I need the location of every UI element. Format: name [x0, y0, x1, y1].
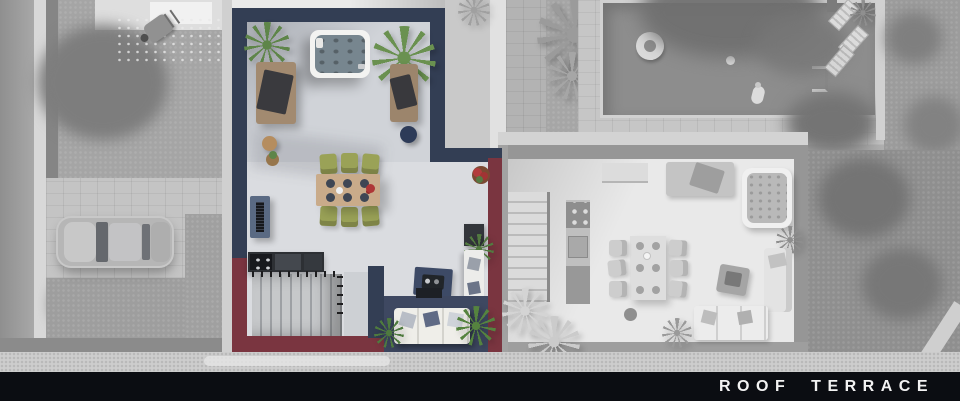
twin-plate — [636, 264, 644, 272]
navy-pouf — [400, 126, 417, 143]
caption-bar: ROOF TERRACE — [0, 372, 960, 401]
round-side-table — [262, 136, 277, 151]
twin-plate — [652, 264, 660, 272]
staircase — [252, 274, 342, 336]
twin-plant-by-sofa — [662, 318, 692, 348]
stove-burners — [250, 254, 272, 270]
car-rear-window — [142, 224, 150, 260]
twin-kitchen — [566, 200, 590, 304]
outdoor-kitchen — [248, 252, 324, 272]
twin-sofa-top-cushion — [689, 162, 725, 194]
daybed-right-cushion — [389, 74, 417, 110]
plant-basket — [266, 153, 279, 166]
twin-sofa-pillow — [701, 309, 718, 325]
twin-chair — [609, 240, 627, 256]
twin-ottoman-tray — [724, 271, 742, 288]
green-leaf — [476, 176, 483, 183]
dining-chair — [361, 153, 380, 174]
kitchen-module — [275, 254, 301, 270]
sidewalk-light-patch — [204, 356, 390, 366]
plate — [360, 193, 369, 202]
car-windshield — [96, 222, 108, 262]
wall-top-navy — [232, 8, 445, 22]
floor-label: ROOF TERRACE — [719, 379, 934, 395]
sidewalk — [0, 352, 960, 372]
twin-sink — [568, 236, 588, 258]
plant-lounge-left — [374, 318, 404, 348]
twin-chair — [607, 259, 627, 277]
hot-tub — [310, 30, 370, 78]
hot-tub-control — [358, 64, 365, 69]
twin-chair — [609, 281, 627, 297]
twin-plate — [636, 242, 644, 250]
stair-railing-side — [337, 274, 343, 314]
twin-sofa-bottom — [694, 306, 768, 340]
daybed-left-cushion — [256, 69, 294, 114]
sideboard-pillow — [467, 257, 481, 271]
dining-chair — [341, 153, 358, 173]
garden-tree-2 — [904, 96, 960, 154]
car-roof — [109, 223, 141, 261]
plate — [343, 179, 352, 188]
fence-line — [222, 0, 232, 352]
pool-side-table — [827, 0, 837, 12]
floor-plan-render: ROOF TERRACE — [0, 0, 960, 401]
twin-chaise — [764, 248, 792, 312]
tv-panel — [416, 288, 442, 298]
wall-stair-bottom-maroon — [236, 336, 386, 352]
twin-chair — [668, 239, 687, 256]
sideboard-pillow-2 — [467, 281, 481, 295]
dining-chair — [319, 206, 337, 227]
twin-hot-tub — [742, 168, 792, 228]
twin-sofa-pillow — [737, 310, 753, 325]
twin-stairs — [508, 192, 550, 302]
twin-sofa-top — [666, 162, 734, 196]
red-table-flowers — [366, 184, 375, 193]
stair-landing — [344, 272, 368, 336]
twin-top-wall — [498, 145, 808, 159]
twin-chair — [670, 260, 688, 276]
daybed-right — [390, 64, 418, 122]
tree-right-of-unit — [818, 158, 910, 238]
twin-cabinet — [566, 266, 590, 304]
street — [0, 0, 34, 372]
hedge-bottom-left — [0, 338, 232, 352]
dining-chair — [341, 207, 358, 227]
plate — [343, 193, 352, 202]
car-trunk — [151, 222, 170, 262]
plate — [326, 179, 335, 188]
twin-plate — [652, 242, 660, 250]
daybed-left — [256, 62, 296, 124]
twin-chair — [668, 280, 688, 298]
console-grille — [256, 202, 264, 232]
wall-right-upper-navy — [430, 8, 445, 160]
tray-cup — [425, 278, 430, 283]
dining-chair — [319, 153, 337, 174]
console-bench — [250, 196, 270, 238]
plant-grey-poolside — [850, 0, 876, 26]
twin-plate — [636, 286, 644, 294]
white-dish — [336, 187, 343, 194]
twin-pouf — [624, 308, 637, 321]
garden-right-path — [876, 0, 885, 140]
stair-railing — [252, 271, 342, 277]
twin-chaise-pillow — [768, 252, 787, 268]
plate — [326, 193, 335, 202]
tray-cup-2 — [434, 279, 439, 284]
car-hood — [64, 222, 96, 262]
garden-tree-1 — [886, 12, 942, 64]
twin-plate — [652, 286, 660, 294]
twin-rug-top — [602, 163, 648, 183]
twin-centerpiece — [643, 252, 651, 260]
potted-red-flowers — [472, 166, 490, 184]
tree-right-of-unit-2 — [862, 248, 942, 320]
twin-ottoman — [716, 264, 750, 297]
person-at-pool — [750, 82, 766, 106]
dining-chair — [361, 205, 380, 226]
sofa-pillow-2 — [423, 311, 441, 328]
hot-tub-headrest — [316, 38, 323, 48]
twin-hot-tub-water — [747, 173, 787, 223]
person-head — [755, 82, 761, 88]
plant-lounge-right — [456, 306, 496, 346]
plant-basket-leaves — [269, 151, 277, 159]
kitchen-module-2 — [304, 254, 322, 270]
parked-car — [56, 214, 174, 274]
twin-stove — [566, 202, 590, 228]
